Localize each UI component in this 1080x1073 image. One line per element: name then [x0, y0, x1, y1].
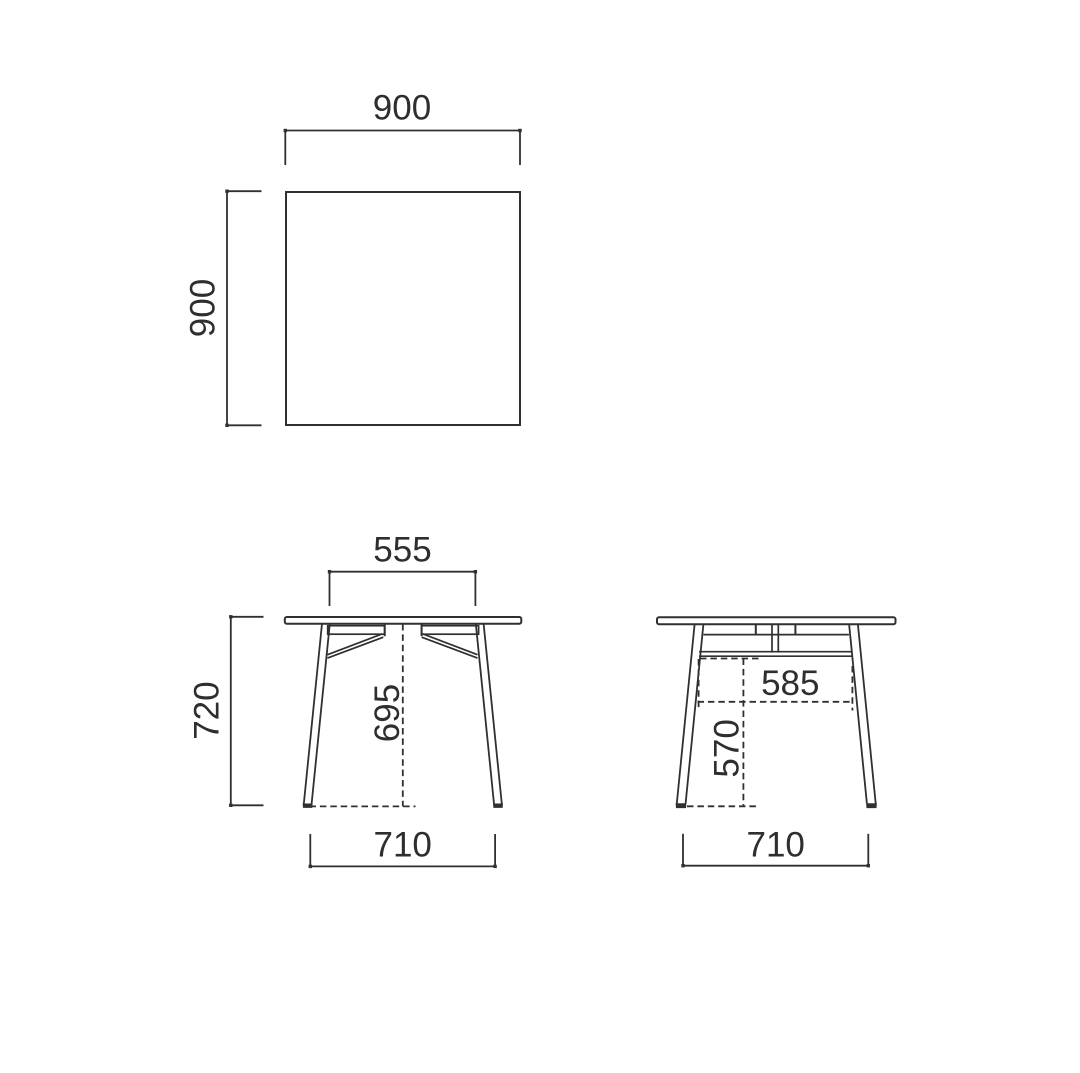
- svg-text:555: 555: [373, 531, 431, 570]
- svg-text:900: 900: [184, 279, 223, 337]
- svg-text:710: 710: [746, 825, 804, 864]
- svg-text:720: 720: [188, 681, 227, 739]
- svg-text:900: 900: [373, 89, 431, 128]
- svg-text:585: 585: [761, 664, 819, 703]
- svg-text:710: 710: [373, 826, 431, 865]
- svg-text:695: 695: [368, 684, 407, 742]
- svg-text:570: 570: [708, 719, 747, 777]
